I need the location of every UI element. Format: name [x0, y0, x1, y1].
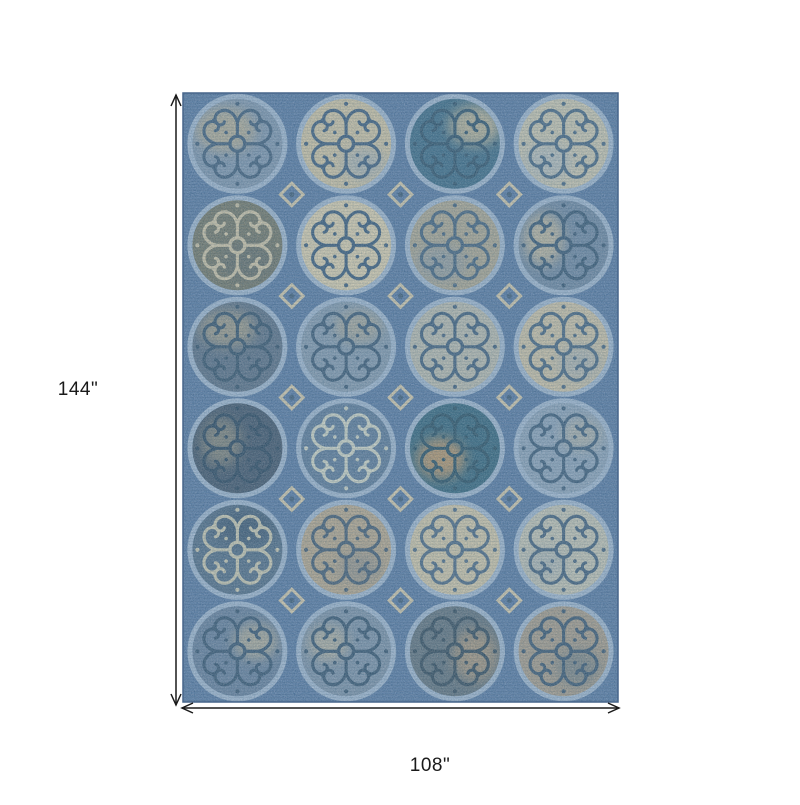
height-dimension-label: 144": [58, 379, 98, 401]
product-dimension-image: 144" 108": [0, 0, 800, 800]
width-dimension-label: 108": [410, 755, 450, 777]
rug-image: [0, 0, 800, 800]
